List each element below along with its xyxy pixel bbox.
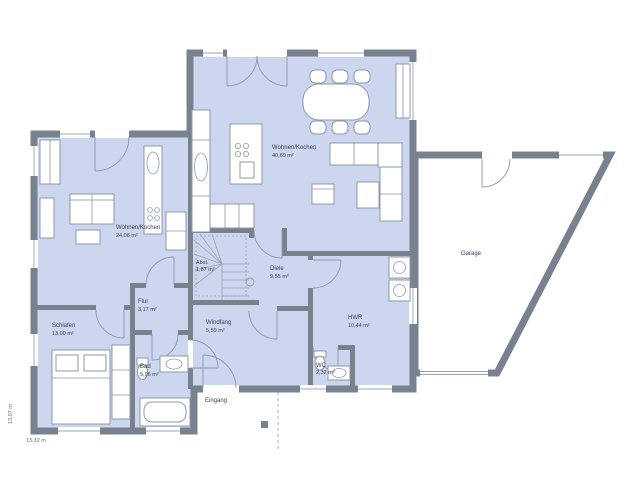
left-sofa (70, 194, 114, 224)
wall-block-divider-lower (188, 368, 193, 389)
window (30, 146, 38, 176)
dining-table (303, 84, 369, 120)
wardrobe (112, 345, 130, 419)
left-coffee-table (76, 230, 100, 244)
kitchen-island (230, 124, 262, 184)
floor-plan-page: Wohnen/Kochen 40,69 m² Wohnen/Kochen 24,… (0, 0, 640, 480)
armchair (312, 184, 334, 204)
sideboard (396, 64, 410, 118)
coffee-table (357, 182, 379, 208)
wall-bad-top-left (132, 330, 152, 335)
island-sink (240, 162, 254, 178)
window (30, 334, 38, 366)
wall-flur-top-right (174, 283, 190, 288)
window (30, 240, 38, 268)
bed (52, 350, 110, 424)
window (60, 130, 90, 138)
dining-set (303, 70, 370, 134)
window (146, 427, 180, 435)
pillow (84, 355, 106, 371)
wall-schlafen-right (130, 283, 135, 431)
window (358, 385, 392, 393)
bathtub (140, 398, 190, 426)
floor-plan-drawing: Wohnen/Kochen 40,69 m² Wohnen/Kochen 24,… (0, 0, 640, 480)
wall-windfang-diele (277, 306, 311, 311)
window (203, 49, 223, 57)
garage-structure (415, 151, 610, 377)
garage-outline (415, 155, 610, 373)
wall-hwr-left-lower (308, 288, 313, 389)
dimension-vertical: 13,07 m (8, 404, 14, 424)
kitchen-counter (192, 110, 210, 232)
left-kitchen-run (144, 146, 162, 234)
wall-hwr-left-upper (308, 251, 313, 260)
window (58, 427, 100, 435)
dryer (389, 280, 410, 301)
kitchen-base-cabinets (210, 204, 254, 228)
wall-stair-bottom (191, 300, 259, 305)
wall-wc-right (350, 345, 355, 389)
left-tall-cabinet (166, 212, 186, 250)
washing-machine (389, 257, 410, 278)
wall-bad-top-right (178, 330, 190, 335)
garage-door (420, 369, 488, 377)
bad-washbasin (160, 356, 188, 372)
left-lowboard (40, 198, 54, 238)
window (318, 49, 364, 57)
wall-hwr-top (282, 251, 413, 256)
wall-schlafen-top-left (34, 305, 96, 310)
garage-window (559, 151, 603, 159)
wall-stair-stub (249, 228, 254, 238)
left-sideboard (40, 140, 60, 184)
window (300, 385, 326, 393)
entrance-label: Eingang (205, 398, 227, 404)
pillow (56, 355, 78, 371)
dimension-horizontal: 13,32 m (26, 438, 46, 444)
canopy-post (261, 421, 268, 428)
room-label-garage: Garage (461, 251, 482, 257)
